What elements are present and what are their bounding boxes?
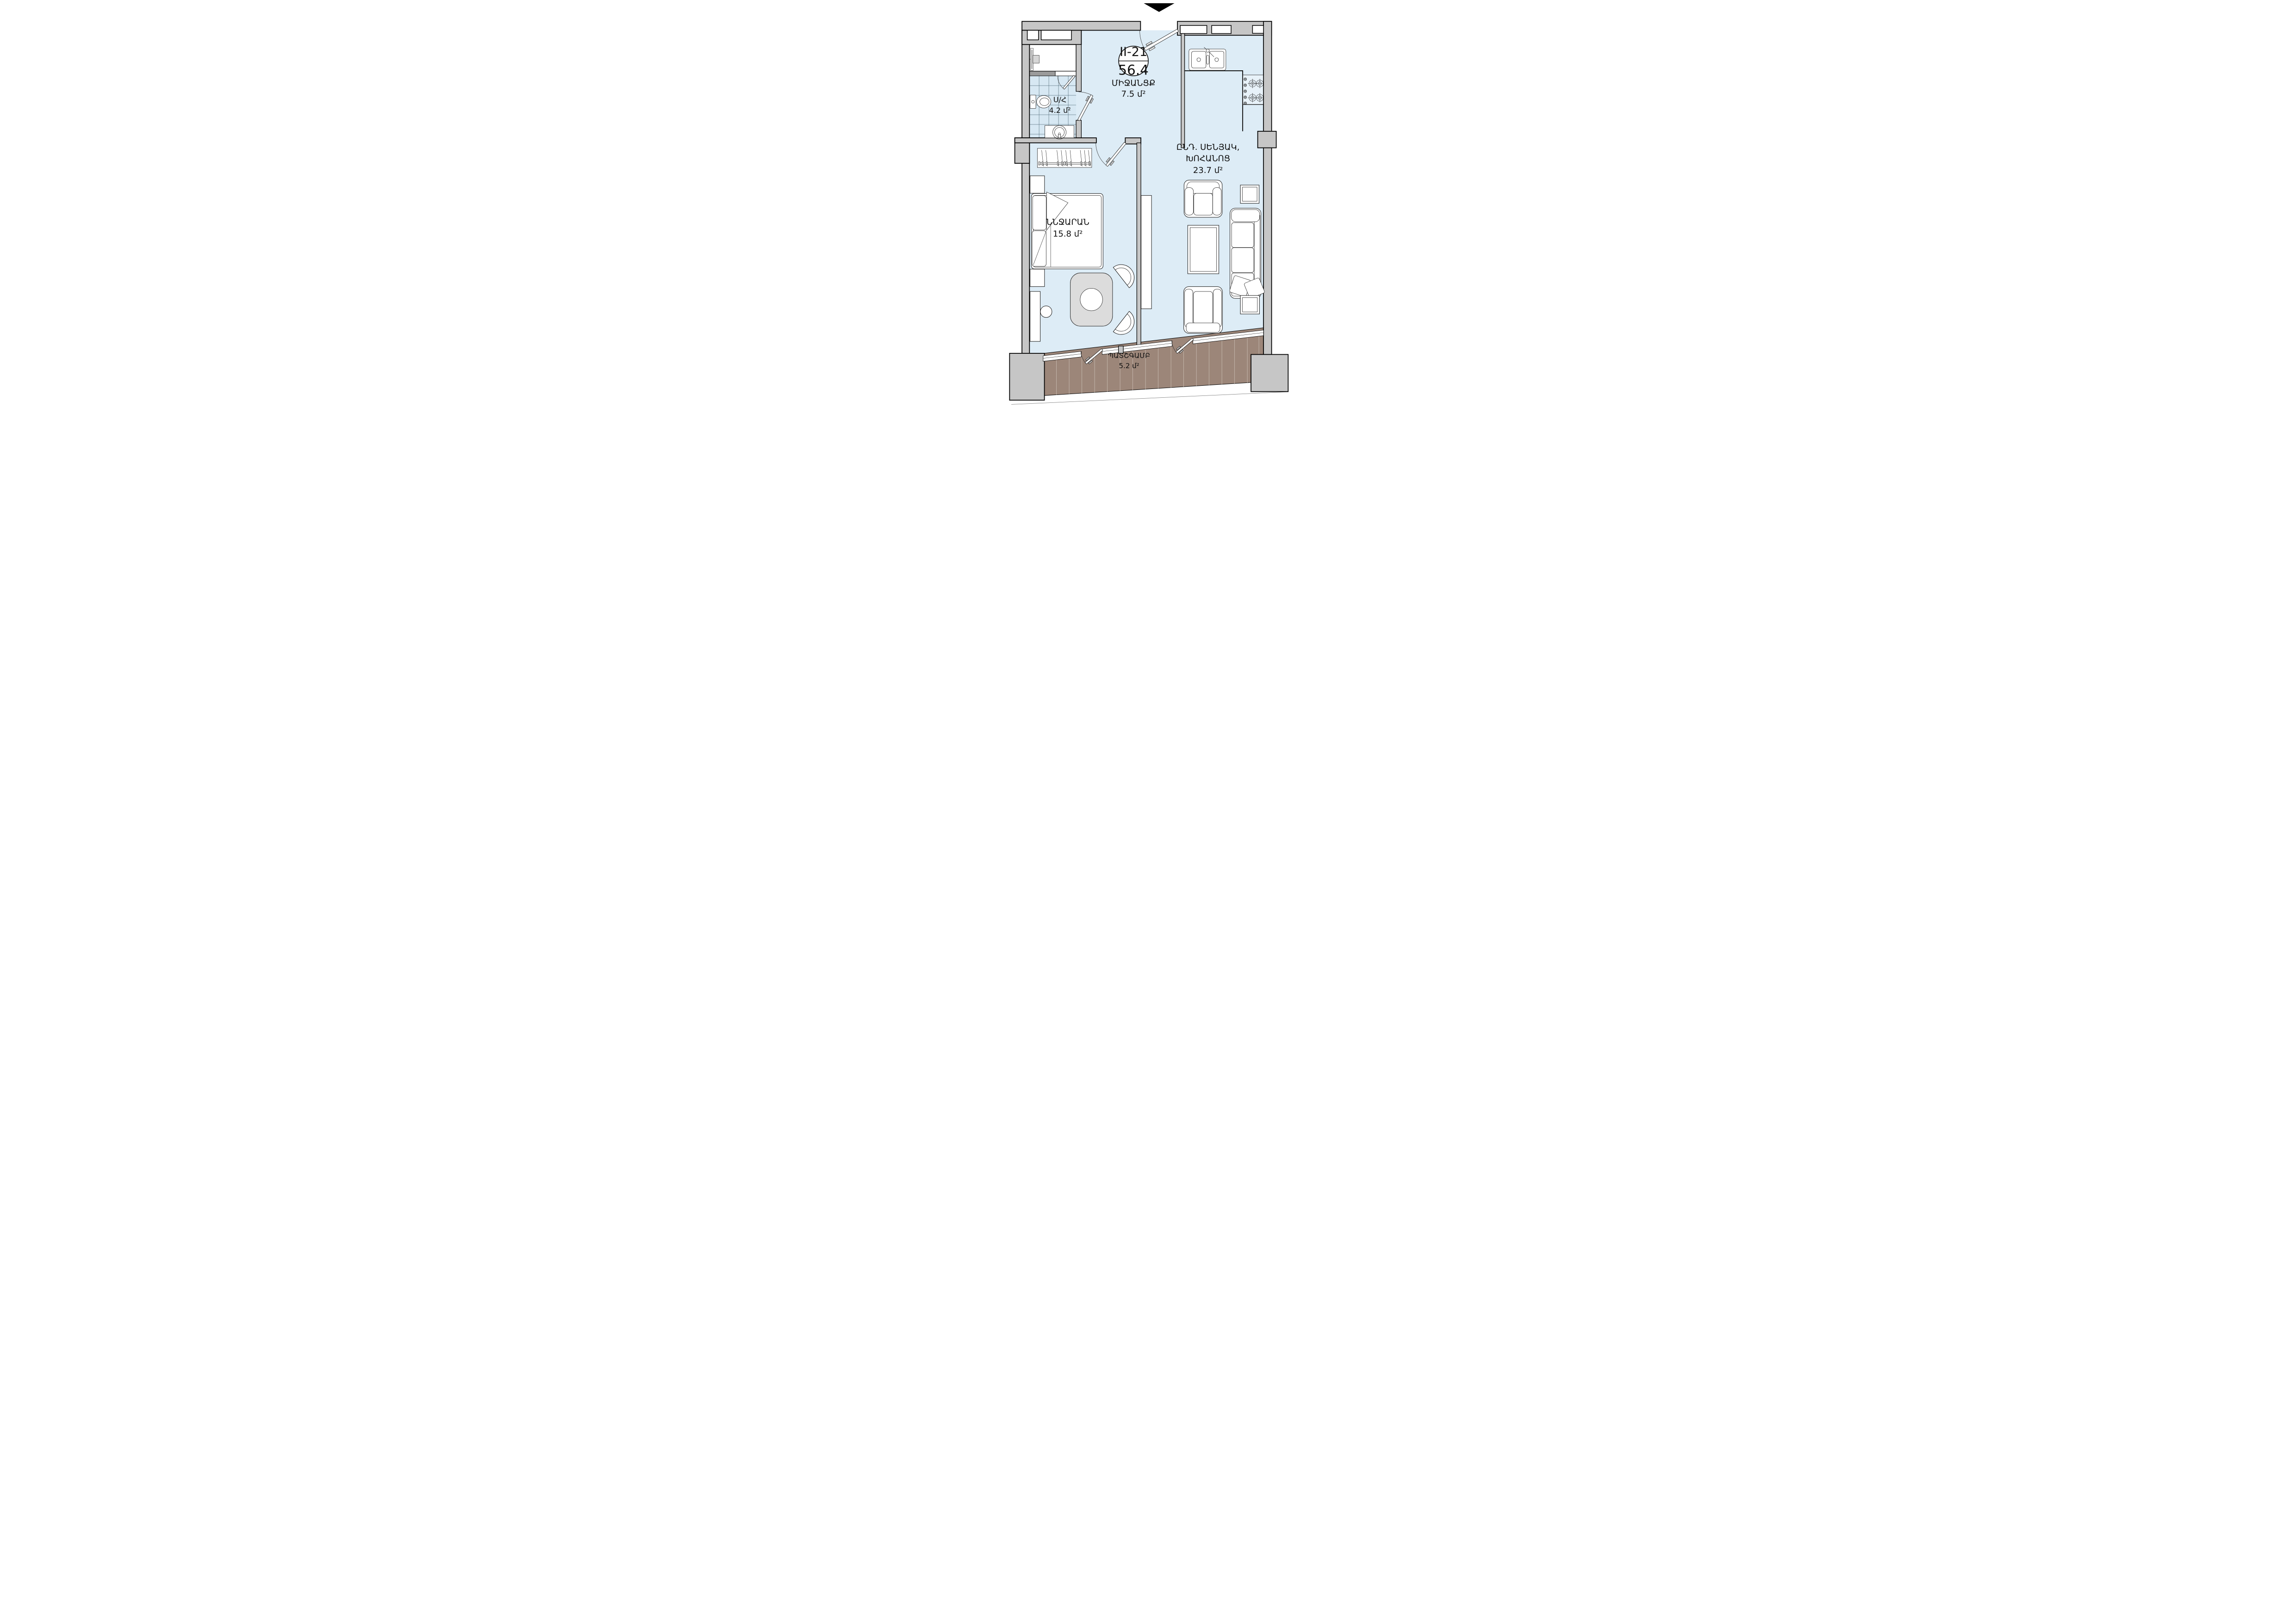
kitchen-sink: [1189, 47, 1226, 70]
tv-console: [1141, 196, 1152, 309]
wall-bathroom-bottom: [1015, 138, 1096, 143]
unit-badge: II-21 56.4: [1118, 45, 1149, 78]
corridor-area: 7.5 մ²: [1121, 89, 1146, 99]
unit-total-area: 56.4: [1118, 62, 1149, 78]
pillar-mid-right: [1258, 131, 1276, 148]
armchair-top: [1184, 180, 1222, 217]
shaft-5: [1252, 25, 1263, 33]
balcony-area: 5.2 մ²: [1119, 362, 1139, 370]
wall-bathroom-right-lower: [1076, 120, 1081, 138]
stool: [1040, 306, 1052, 317]
toilet: [1030, 95, 1051, 109]
bathroom-name: Ս/Հ: [1053, 95, 1067, 104]
sofa: [1229, 208, 1265, 298]
pillow-2: [1032, 231, 1046, 266]
corridor-name: ՄԻՋԱՆՑՔ: [1112, 79, 1155, 88]
wall-corridor-kitchen: [1181, 31, 1185, 148]
side-table-top: [1240, 185, 1259, 204]
bathroom-area: 4.2 մ²: [1049, 106, 1071, 115]
wall-left: [1022, 31, 1029, 353]
nightstand-bottom: [1030, 269, 1045, 287]
armchair-bottom: [1184, 287, 1223, 333]
floor-plan-page: II-21 56.4 ՄԻՋԱՆՑՔ 7.5 մ² Ս/Հ 4.2 մ² ԸՆԴ…: [861, 0, 1435, 406]
pillar-bottom-left: [1009, 353, 1044, 400]
bathroom-sink: [1045, 125, 1074, 139]
bedroom-name: ՆՆՋԱՐԱՆ: [1046, 217, 1089, 227]
floor-plan-canvas: II-21 56.4 ՄԻՋԱՆՑՔ 7.5 մ² Ս/Հ 4.2 մ² ԸՆԴ…: [861, 0, 1435, 406]
kitchen-stove: [1243, 75, 1263, 105]
balcony-name: ՊԱՏՇԳԱՄԲ: [1108, 352, 1150, 360]
pillar-bottom-right: [1251, 354, 1288, 391]
bedroom-area: 15.8 մ²: [1053, 229, 1083, 239]
shaft-2: [1041, 31, 1072, 40]
round-table: [1080, 288, 1103, 311]
wall-top-left: [1022, 21, 1140, 30]
living-kitchen-name-line2: ԽՈՀԱՆՈՑ: [1186, 154, 1230, 163]
shower-curb: [1029, 71, 1055, 76]
pillow-1: [1033, 196, 1046, 230]
wardrobe: [1037, 148, 1092, 167]
shaft-3: [1180, 25, 1207, 34]
side-table-bottom: [1240, 296, 1259, 314]
wall-bedroom-living-divider: [1137, 143, 1141, 346]
nightstand-top: [1030, 176, 1045, 193]
wall-right: [1263, 21, 1272, 354]
living-kitchen-area: 23.7 մ²: [1193, 166, 1223, 175]
shaft-4: [1212, 25, 1231, 34]
wall-bathroom-right-upper: [1076, 44, 1081, 91]
unit-id: II-21: [1120, 45, 1147, 59]
living-kitchen-name-line1: ԸՆԴ. ՍԵՆՅԱԿ,: [1176, 142, 1240, 152]
coffee-table: [1188, 225, 1219, 274]
shaft-1: [1027, 31, 1039, 40]
shower-threshold: [1055, 71, 1076, 76]
dresser: [1030, 291, 1040, 341]
